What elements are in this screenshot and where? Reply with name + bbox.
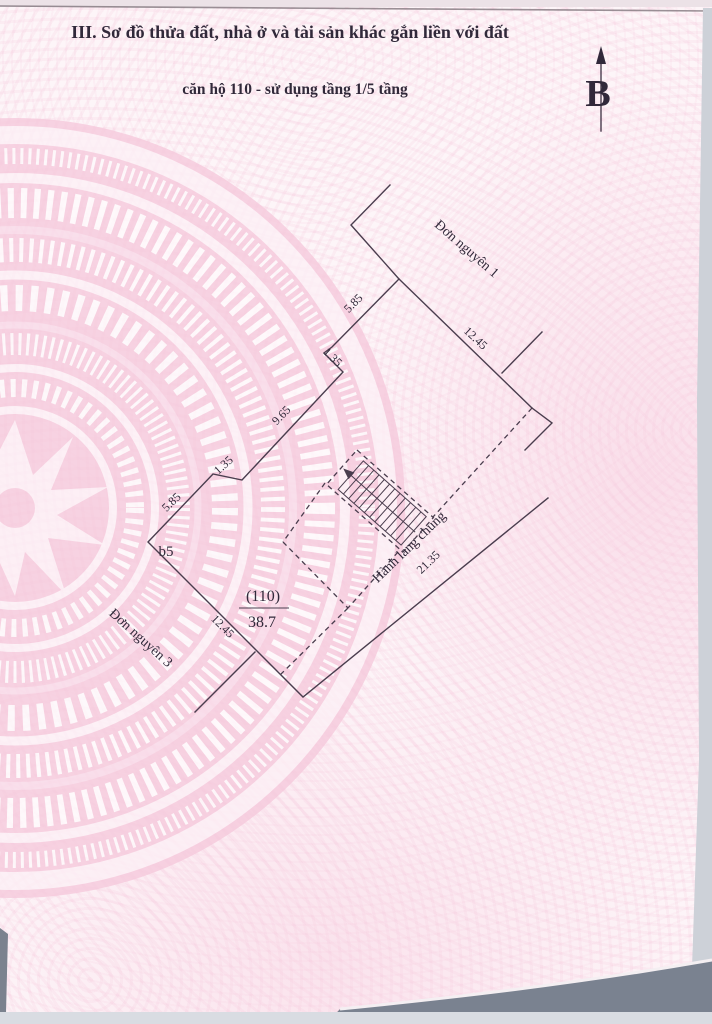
unit1-partition-tick xyxy=(502,332,542,373)
page-right-edge xyxy=(692,8,712,968)
unit1-corridor-edge xyxy=(399,279,532,408)
scanned-certificate-page: B III. Sơ đồ thửa đất, nhà ở và tài sản … xyxy=(0,0,712,1024)
north-arrow: B xyxy=(585,46,610,131)
page-title: III. Sơ đồ thửa đất, nhà ở và tài sản kh… xyxy=(71,22,509,42)
scan-bottom-strip xyxy=(0,1012,712,1024)
north-label: B xyxy=(585,73,610,115)
bottom-left-edge xyxy=(0,928,8,1013)
plan-drawing: B III. Sơ đồ thửa đất, nhà ở và tài sản … xyxy=(0,0,712,1024)
dim-2135: 21.35 xyxy=(414,548,443,577)
corridor-end-stub xyxy=(525,408,552,450)
page-subtitle: căn hộ 110 - sử dụng tầng 1/5 tầng xyxy=(182,81,408,98)
apartment-number: (110) xyxy=(246,588,280,605)
north-arrow-head xyxy=(596,46,606,64)
label-b5: b5 xyxy=(159,544,174,560)
apartment-area: 38.7 xyxy=(248,614,276,631)
dim-1245-top: 12.45 xyxy=(461,324,490,353)
label-don-nguyen-1: Đơn nguyên 1 xyxy=(431,218,501,282)
drum-watermark xyxy=(0,118,405,898)
